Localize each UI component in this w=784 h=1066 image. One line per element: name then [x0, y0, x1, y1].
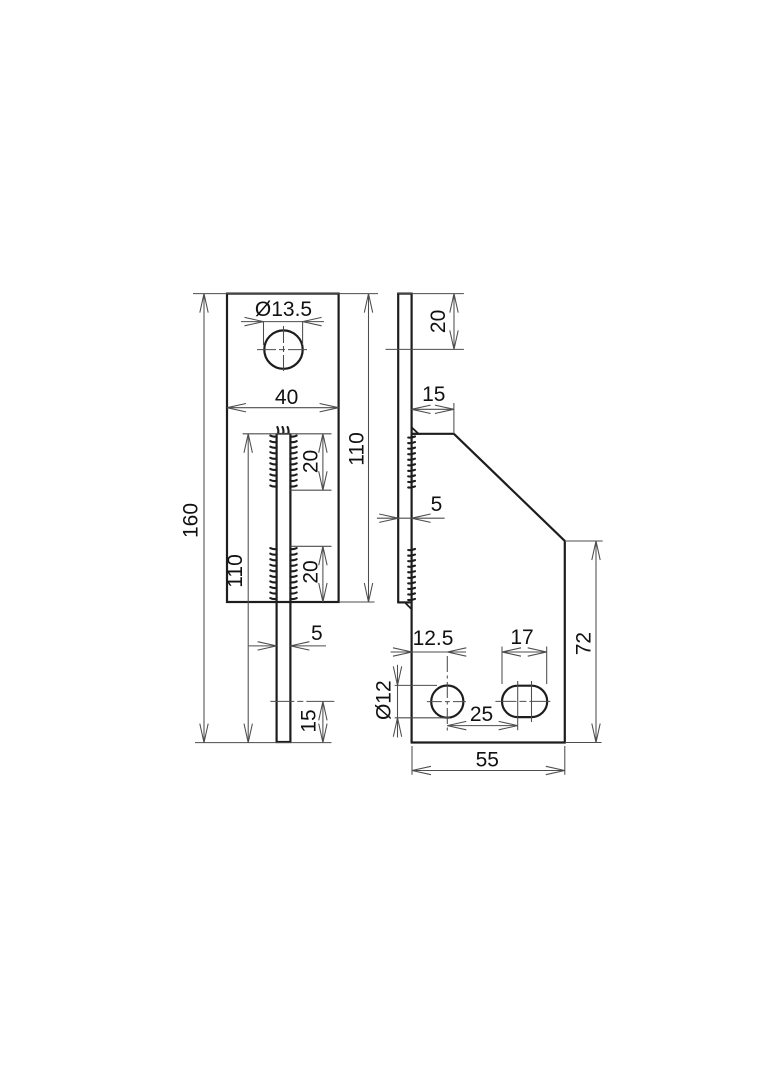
svg-text:15: 15	[297, 709, 320, 732]
svg-text:72: 72	[572, 632, 595, 655]
svg-text:25: 25	[470, 703, 493, 726]
svg-text:Ø13.5: Ø13.5	[255, 298, 312, 321]
svg-text:110: 110	[224, 554, 247, 587]
svg-text:20: 20	[427, 310, 450, 333]
svg-text:160: 160	[180, 503, 203, 538]
svg-text:20: 20	[300, 560, 323, 583]
svg-text:Ø12: Ø12	[373, 680, 396, 720]
svg-text:5: 5	[431, 493, 443, 516]
svg-text:55: 55	[476, 749, 499, 772]
svg-text:15: 15	[422, 383, 445, 406]
svg-text:40: 40	[275, 386, 298, 409]
svg-text:17: 17	[510, 626, 533, 649]
svg-text:5: 5	[311, 622, 323, 645]
svg-text:110: 110	[346, 432, 369, 465]
svg-text:20: 20	[300, 450, 323, 473]
svg-text:12.5: 12.5	[413, 627, 454, 650]
